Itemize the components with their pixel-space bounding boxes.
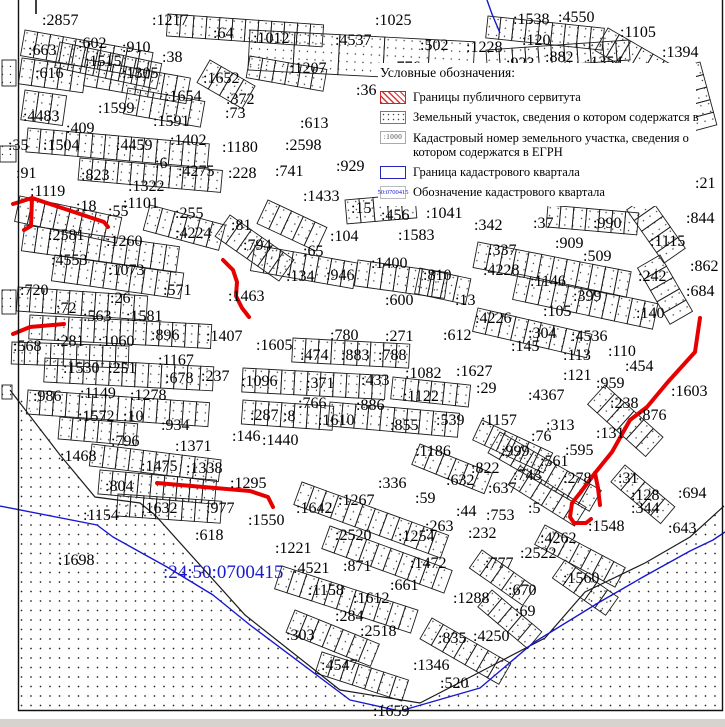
parcel-label: :883 (341, 347, 369, 364)
parcel-label: :855 (390, 417, 418, 434)
parcel-label: :4547 (321, 657, 357, 674)
parcel-label: :1288 (453, 590, 489, 607)
parcel-fragment (2, 290, 16, 314)
parcel-label: :1060 (98, 333, 134, 350)
parcel-label: :1338 (186, 460, 222, 477)
legend-item-cadastral-number: :1000 Кадастровый номер земельного участ… (380, 131, 696, 161)
parcel-label: :1627 (456, 363, 492, 380)
legend-item-label: Кадастровый номер земельного участка, св… (413, 131, 696, 161)
parcel-label: :474 (300, 347, 328, 364)
parcel-label: :271 (385, 328, 413, 345)
parcel-label: :876 (638, 407, 666, 424)
parcel-label: :1041 (426, 205, 462, 222)
parcel-label: :1642 (296, 500, 332, 517)
quarter-designation-swatch: 50:0700415 (380, 186, 406, 199)
parcel-label: :934 (161, 417, 189, 434)
parcel-label: :4483 (23, 108, 59, 125)
parcel-label: :1305 (122, 65, 158, 82)
parcel-label: :251 (108, 360, 136, 377)
parcel-label: :2581 (48, 227, 84, 244)
parcel-label: :304 (528, 325, 556, 342)
parcel-label: :871 (343, 558, 371, 575)
legend-item-servitude: Границы публичного сервитута (380, 91, 696, 105)
parcel-label: :2518 (360, 623, 396, 640)
parcel-label: :990 (593, 215, 621, 232)
parcel-label: :371 (306, 375, 334, 392)
legend-title: Условные обозначения: (380, 65, 696, 81)
parcel-label: :26 (110, 290, 130, 307)
parcel-label: :433 (361, 372, 389, 389)
parcel-label: :4536 (571, 328, 607, 345)
parcel-label: :678 (165, 370, 193, 387)
parcel-label: :637 (488, 480, 516, 497)
parcel-label: :1472 (410, 555, 446, 572)
parcel-label: :255 (175, 205, 203, 222)
parcel-label: :81 (231, 217, 251, 234)
parcel-label: :303 (286, 627, 314, 644)
parcel-label: :134 (286, 268, 314, 285)
parcel-label: :986 (33, 388, 61, 405)
parcel-label: :1096 (241, 373, 277, 390)
parcel-label: :1295 (230, 475, 266, 492)
parcel-label: :643 (668, 520, 696, 537)
parcel-label: :72 (56, 300, 76, 317)
parcel-label: :1583 (398, 227, 434, 244)
parcel-label: :929 (336, 158, 364, 175)
parcel-label: :1217 (152, 12, 188, 29)
parcel-label: :337 (488, 242, 516, 259)
parcel-label: :1073 (108, 262, 144, 279)
parcel-label: :810 (423, 267, 451, 284)
parcel-label: :743 (513, 467, 541, 484)
bottom-window-edge (0, 719, 725, 727)
parcel-label: :29 (476, 380, 496, 397)
parcel-label: :1610 (318, 412, 354, 429)
parcel-label: :595 (565, 442, 593, 459)
parcel-label: :6 (155, 155, 167, 172)
parcel-label: :1115 (650, 233, 685, 250)
legend-item-label: Земельный участок, сведения о котором со… (413, 111, 699, 125)
parcel-label: :342 (474, 217, 502, 234)
parcel-label: :237 (201, 368, 229, 385)
parcel-label: :844 (686, 210, 714, 227)
parcel-dotted-swatch (380, 111, 406, 124)
parcel-label: :113 (563, 347, 591, 364)
parcel-label: :4224 (175, 225, 211, 242)
parcel-label: :121 (563, 367, 591, 384)
parcel-label: :561 (540, 453, 568, 470)
parcel-label: :1025 (375, 12, 411, 29)
parcel-label: :1180 (222, 139, 258, 156)
parcel-label: :2520 (335, 527, 371, 544)
parcel-label: :140 (636, 305, 664, 322)
parcel-label: :31 (618, 470, 638, 487)
parcel-label: :1463 (228, 288, 264, 305)
parcel-label: :278 (563, 470, 591, 487)
parcel-label: :946 (326, 267, 354, 284)
parcel-label: :1612 (353, 590, 389, 607)
parcel-label: :344 (631, 500, 659, 517)
parcel-label: :1186 (415, 443, 451, 460)
parcel-label: :741 (275, 163, 303, 180)
parcel-label: :104 (330, 228, 358, 245)
parcel-label: :753 (486, 507, 514, 524)
parcel-label: :568 (13, 338, 41, 355)
legend-item-parcel: Земельный участок, сведения о котором со… (380, 111, 696, 125)
parcel-label: :1167 (158, 352, 194, 369)
parcel-label: :287 (250, 407, 278, 424)
parcel-label: :1530 (63, 360, 99, 377)
parcel-label: :120 (522, 32, 550, 49)
parcel-label: :1012 (253, 30, 289, 47)
parcel-label: :780 (330, 327, 358, 344)
parcel-label: :1652 (203, 70, 239, 87)
parcel-label: :1433 (303, 188, 339, 205)
parcel-label: :1572 (78, 408, 114, 425)
parcel-label: :1605 (256, 337, 292, 354)
parcel-label: :1105 (620, 24, 656, 41)
parcel-label: :684 (686, 283, 714, 300)
parcel-label: :4521 (293, 560, 329, 577)
parcel-label: :1267 (338, 492, 374, 509)
map-legend: Условные обозначения: Границы публичного… (378, 63, 696, 206)
parcel-label: :823 (81, 167, 109, 184)
parcel-label: :1440 (262, 432, 298, 449)
legend-item-label: Границы публичного сервитута (413, 91, 581, 105)
parcel-label: :1122 (403, 388, 439, 405)
parcel-label: :1581 (126, 308, 162, 325)
parcel-label: :105 (543, 303, 571, 320)
parcel-label: :1371 (175, 438, 211, 455)
parcel-label: :602 (78, 35, 106, 52)
parcel-label: :1560 (563, 570, 599, 587)
parcel-label: :1082 (405, 365, 441, 382)
parcel-label: :777 (485, 555, 513, 572)
parcel-label: :55 (108, 203, 128, 220)
parcel-label: :146 (232, 428, 260, 445)
parcel-label: :1278 (130, 387, 166, 404)
parcel-label: :131 (596, 425, 624, 442)
parcel-label: :37 (533, 215, 553, 232)
parcel-label: :1157 (481, 412, 517, 429)
parcel-label: :616 (35, 65, 63, 82)
parcel-label: :1654 (165, 88, 201, 105)
parcel-label: :520 (440, 675, 468, 692)
parcel-label: :4228 (483, 262, 519, 279)
parcel-label: :1400 (371, 255, 407, 272)
parcel-label: :1146 (530, 273, 566, 290)
parcel-label: :69 (515, 603, 535, 620)
parcel-label: :36 (356, 82, 376, 99)
parcel-label: :1207 (290, 60, 326, 77)
parcel-label: :1346 (413, 657, 449, 674)
parcel-label: :73 (225, 105, 245, 122)
parcel-label: :1698 (58, 552, 94, 569)
parcel-label: :618 (195, 527, 223, 544)
parcel-label: :38 (162, 49, 182, 66)
parcel-label: :1228 (466, 39, 502, 56)
legend-item-label: Граница кадастрового квартала (413, 166, 580, 180)
parcel-label: :822 (471, 460, 499, 477)
parcel-label: :910 (122, 39, 150, 56)
parcel-label: :409 (66, 120, 94, 137)
parcel-label: :4226 (475, 310, 511, 327)
parcel-label: :18 (76, 198, 96, 215)
parcel-label: :1149 (80, 385, 116, 402)
quarter-border-swatch (380, 166, 406, 179)
parcel-label: :663 (28, 42, 56, 59)
parcel-label: :632 (446, 472, 474, 489)
parcel-label: :5 (528, 500, 540, 517)
parcel-label: :1254 (398, 528, 434, 545)
servitude-hatch-swatch (380, 91, 406, 104)
parcel-label: :59 (415, 490, 435, 507)
parcel-label: :1221 (275, 540, 311, 557)
parcel-label: :4275 (178, 163, 214, 180)
parcel-label: :612 (443, 327, 471, 344)
parcel-label: :4459 (116, 137, 152, 154)
parcel-label: :15 (351, 200, 371, 217)
legend-item-quarter-designation: 50:0700415 Обозначение кадастрового квар… (380, 186, 696, 200)
parcel-label: :1158 (308, 582, 344, 599)
parcel-label: :232 (468, 525, 496, 542)
parcel-label: :571 (163, 282, 191, 299)
parcel-label: :4553 (51, 252, 87, 269)
parcel-label: :13 (455, 292, 475, 309)
parcel-label: :76 (531, 428, 551, 445)
parcel-label: :613 (300, 115, 328, 132)
parcel-label: :1260 (106, 233, 142, 250)
parcel-label: :1468 (60, 448, 96, 465)
parcel-label: :999 (501, 443, 529, 460)
parcel-label: :4537 (335, 32, 371, 49)
parcel-label: :1550 (248, 512, 284, 529)
parcel-label: :1599 (98, 100, 134, 117)
parcel-label: :694 (678, 485, 706, 502)
parcel-label: :21 (695, 175, 715, 192)
legend-item-quarter-border: Граница кадастрового квартала (380, 166, 696, 180)
parcel-label: :766 (298, 395, 326, 412)
parcel-label: :886 (356, 397, 384, 414)
parcel-label: :1504 (43, 137, 79, 154)
parcel-label: :1119 (30, 183, 65, 200)
parcel-fragment (2, 385, 12, 399)
parcel-label: :238 (610, 395, 638, 412)
parcel-label: :2522 (520, 545, 556, 562)
parcel-label: :1402 (170, 132, 206, 149)
parcel-label: :1538 (513, 11, 549, 28)
parcel-label: :1407 (206, 328, 242, 345)
parcel-label: :563 (83, 308, 111, 325)
parcel-label: :1515 (85, 53, 121, 70)
parcel-label: :10 (123, 408, 143, 425)
parcel-label: :788 (378, 347, 406, 364)
parcel-label: :509 (583, 248, 611, 265)
parcel-label: :228 (228, 165, 256, 182)
parcel-label: :1394 (662, 44, 698, 61)
parcel-label: :1632 (141, 500, 177, 517)
parcel-label: :44 (456, 503, 476, 520)
parcel-label: :1603 (671, 383, 707, 400)
parcel-label: :835 (438, 630, 466, 647)
legend-item-label: Обозначение кадастрового квартала (413, 186, 605, 200)
parcel-label: :8 (283, 408, 295, 425)
parcel-label: :502 (420, 37, 448, 54)
parcel-label: :2598 (285, 137, 321, 154)
parcel-label: :539 (436, 412, 464, 429)
parcel-label: :804 (105, 478, 133, 495)
parcel-label: :281 (56, 333, 84, 350)
parcel-label: :2857 (42, 12, 78, 29)
parcel-label: :670 (508, 582, 536, 599)
parcel-label: :909 (555, 235, 583, 252)
parcel-label: :1154 (83, 507, 119, 524)
parcel-label: :959 (596, 375, 624, 392)
parcel-label: :242 (638, 268, 666, 285)
parcel-label: :1548 (588, 518, 624, 535)
parcel-label: :1659 (373, 703, 409, 720)
parcel-label: :4367 (528, 387, 564, 404)
parcel-label: :862 (690, 258, 718, 275)
cadastral-number-swatch: :1000 (380, 131, 406, 144)
parcel-label: :4550 (558, 9, 594, 26)
parcel-label: :336 (378, 475, 406, 492)
parcel-label: :65 (303, 243, 323, 260)
parcel-label: :1322 (128, 178, 164, 195)
quarter-designation-label: :24:50:0700415 (163, 562, 283, 583)
parcel-label: :720 (20, 282, 48, 299)
cadastral-map-viewer: :2857:1217:1025:1538:4550:64:663:602:910… (0, 0, 725, 727)
parcel-label: :600 (385, 292, 413, 309)
parcel-label: :399 (573, 288, 601, 305)
parcel-label: :896 (151, 327, 179, 344)
parcel-label: :1591 (153, 113, 189, 130)
parcel-label: :796 (111, 433, 139, 450)
parcel-fragment (2, 60, 16, 86)
parcel-label: :661 (390, 577, 418, 594)
parcel-label: :4250 (473, 628, 509, 645)
parcel-label: :456 (381, 207, 409, 224)
parcel-label: :64 (213, 25, 233, 42)
parcel-label: :977 (206, 500, 234, 517)
parcel-label: :454 (625, 358, 653, 375)
parcel-label: :1475 (141, 458, 177, 475)
parcel-label: :794 (243, 237, 271, 254)
